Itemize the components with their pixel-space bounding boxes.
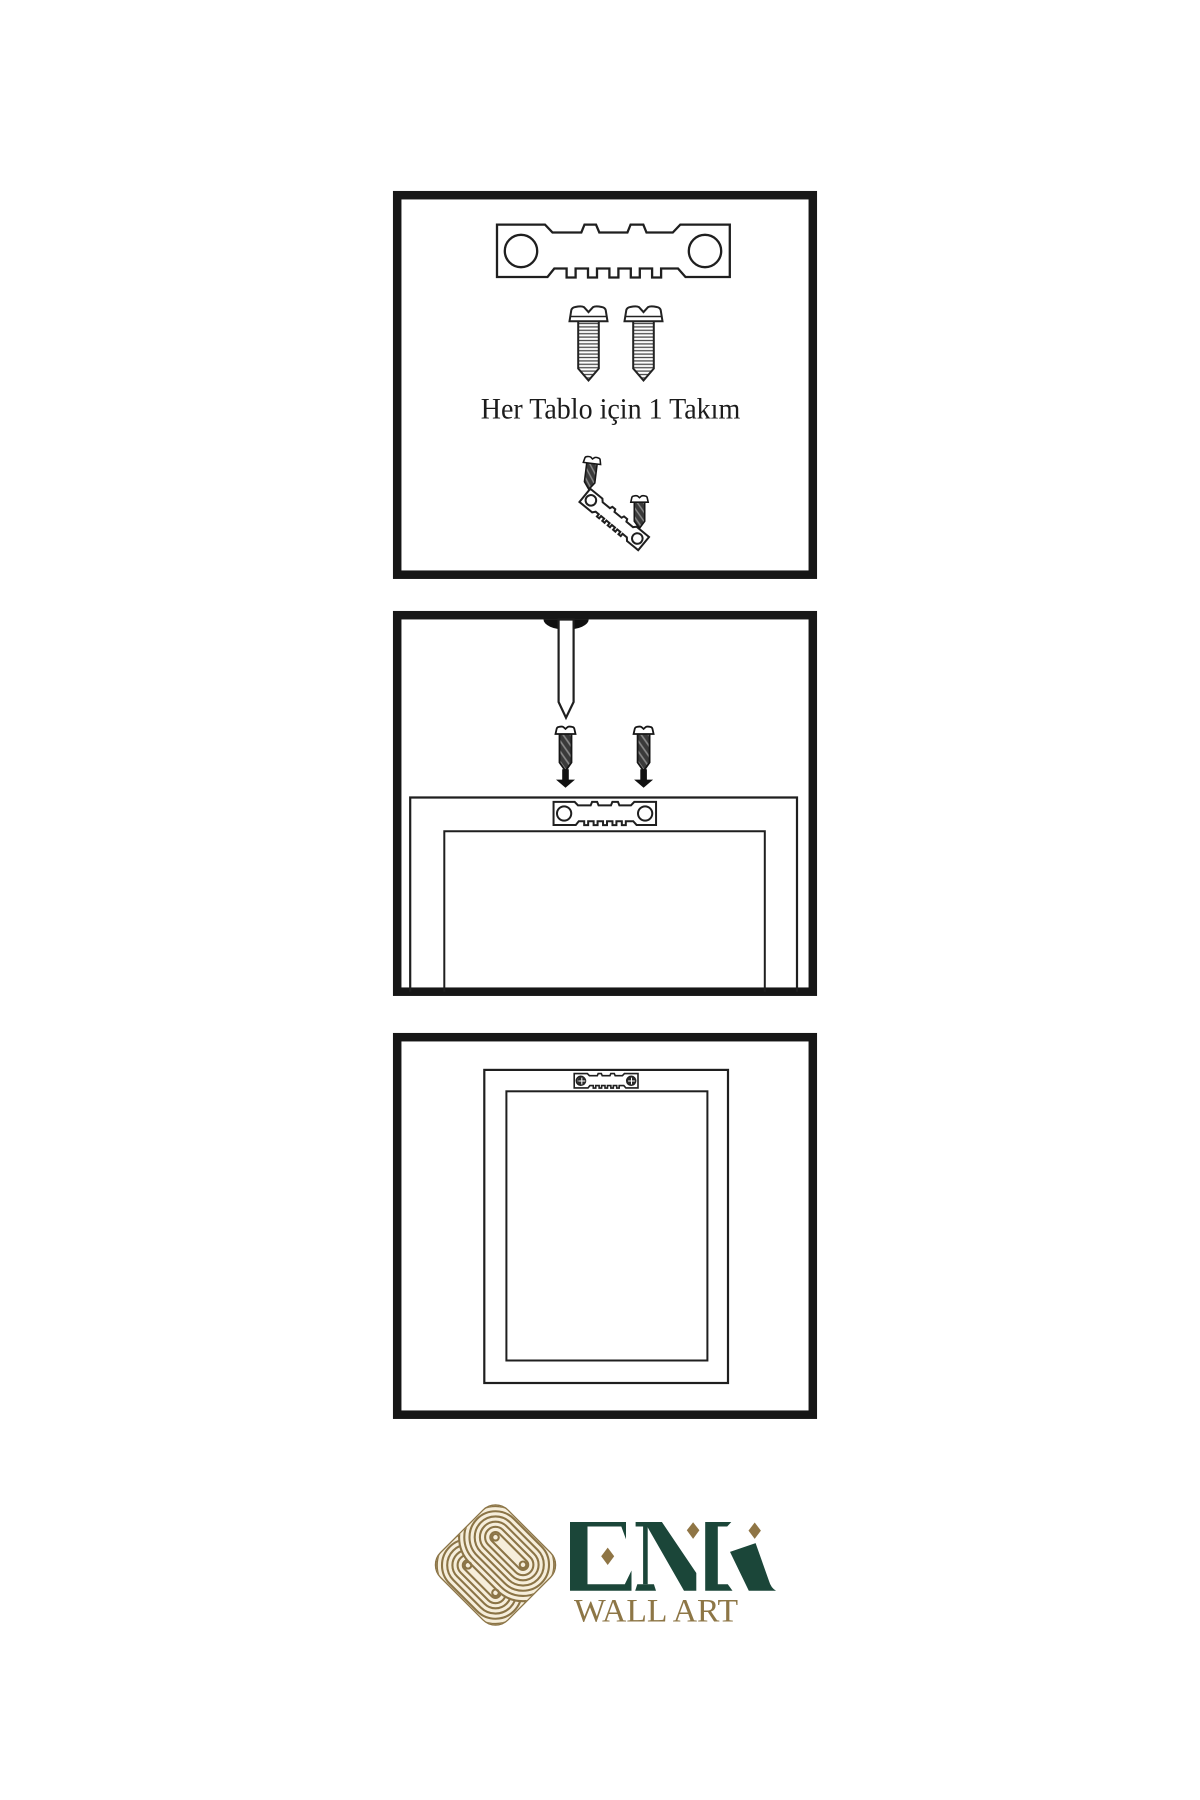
svg-text:Her Tablo için 1 Takım: Her Tablo için 1 Takım — [481, 394, 741, 426]
svg-text:WALL ART: WALL ART — [574, 1594, 738, 1630]
